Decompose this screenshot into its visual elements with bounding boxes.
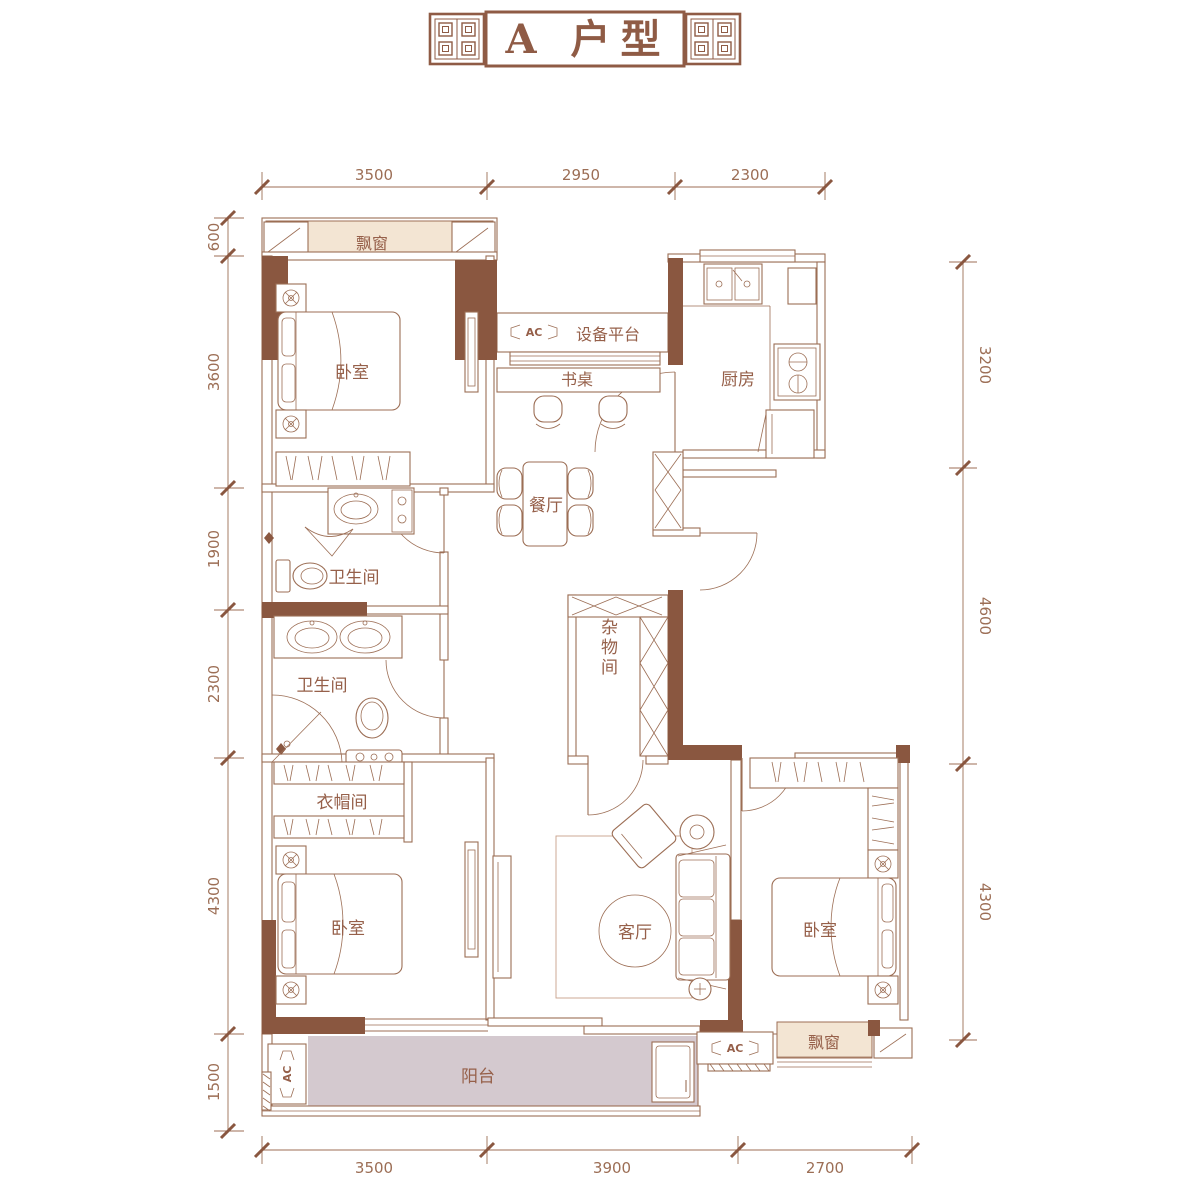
dim-top-1: 3500 — [355, 166, 393, 184]
label-living: 客厅 — [618, 923, 652, 943]
dim-top-3: 2300 — [731, 166, 769, 184]
dim-right-2: 4600 — [976, 597, 994, 635]
bedroom-br-furniture — [750, 758, 898, 1004]
title-deco-left-icon — [430, 14, 484, 64]
ac-label-bottom: AC — [727, 1042, 744, 1055]
ac-label-left: AC — [281, 1066, 294, 1083]
label-balcony: 阳台 — [461, 1067, 495, 1087]
label-bay-top: 飘窗 — [356, 234, 388, 253]
washing-machine — [652, 1042, 694, 1102]
dim-right-1: 3200 — [976, 346, 994, 384]
dim-left-5: 4300 — [205, 877, 223, 915]
label-bath-lower: 卫生间 — [297, 676, 348, 696]
stove — [774, 344, 820, 400]
dim-left-6: 1500 — [205, 1063, 223, 1101]
dim-left-2: 3600 — [205, 353, 223, 391]
label-dining: 餐厅 — [529, 496, 563, 516]
bedroom-tl-furniture — [276, 284, 478, 486]
label-equipment: 设备平台 — [576, 325, 640, 344]
storage-door-arc — [588, 760, 643, 815]
floorplan-svg: A 户型 3500 2950 2300 3500 3900 2700 — [0, 0, 1193, 1199]
dim-left-3: 1900 — [205, 530, 223, 568]
label-bedroom-tl: 卧室 — [335, 363, 369, 383]
bath-lower-door-arc — [386, 660, 444, 718]
dim-left-4: 2300 — [205, 665, 223, 703]
dim-bottom-1: 3500 — [355, 1159, 393, 1177]
dim-right-3: 4300 — [976, 883, 994, 921]
ac-platform-bottom: AC — [697, 1032, 773, 1071]
label-bedroom-br: 卧室 — [803, 921, 837, 941]
dim-top-2: 2950 — [562, 166, 600, 184]
ac-label-equipment: AC — [526, 326, 543, 339]
page-title: A 户型 — [505, 16, 671, 63]
label-bath-upper: 卫生间 — [329, 568, 380, 588]
label-desk: 书桌 — [561, 370, 593, 389]
balcony-fill — [308, 1036, 698, 1106]
label-kitchen: 厨房 — [721, 370, 755, 390]
fridge — [766, 410, 814, 458]
label-cloakroom: 衣帽间 — [317, 793, 368, 813]
dim-bottom-3: 2700 — [806, 1159, 844, 1177]
title-bar: A 户型 — [430, 12, 740, 66]
label-bay-bottom: 飘窗 — [808, 1033, 840, 1052]
label-storage: 杂物间 — [597, 618, 618, 678]
bedroom-bl-furniture — [276, 842, 478, 1004]
ac-equipment: AC — [511, 325, 557, 339]
dim-bottom-2: 3900 — [593, 1159, 631, 1177]
title-deco-right-icon — [686, 14, 740, 64]
entry-door-arc — [700, 533, 757, 590]
kitchen-furniture — [683, 264, 820, 458]
sofa — [676, 854, 730, 980]
label-bedroom-bl: 卧室 — [331, 919, 365, 939]
dim-left-1: 600 — [205, 223, 223, 252]
living-furniture — [493, 802, 730, 1000]
floorplan-page: A 户型 3500 2950 2300 3500 3900 2700 — [0, 0, 1193, 1199]
